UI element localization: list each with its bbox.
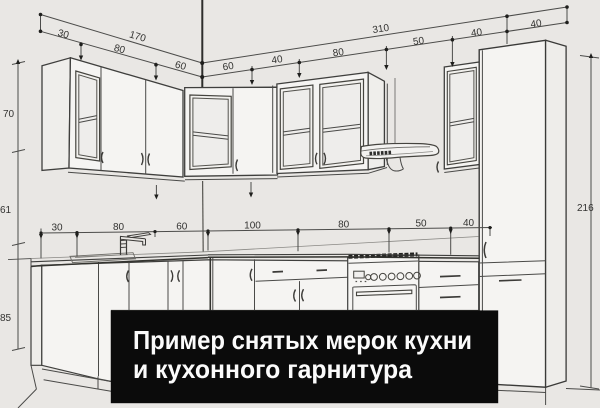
- svg-text:216: 216: [577, 203, 594, 214]
- svg-text:100: 100: [244, 221, 261, 232]
- svg-text:61: 61: [0, 205, 12, 216]
- svg-text:60: 60: [222, 61, 235, 74]
- svg-text:40: 40: [530, 18, 543, 31]
- svg-text:50: 50: [415, 219, 427, 230]
- svg-text:и кухонного гарнитура: и кухонного гарнитура: [133, 354, 413, 384]
- svg-text:30: 30: [51, 223, 63, 234]
- svg-text:60: 60: [176, 222, 188, 233]
- svg-text:70: 70: [3, 109, 15, 120]
- svg-text:40: 40: [470, 27, 483, 40]
- svg-text:85: 85: [0, 313, 12, 324]
- svg-text:80: 80: [332, 47, 345, 60]
- svg-text:80: 80: [113, 222, 125, 233]
- svg-text:80: 80: [338, 220, 350, 231]
- svg-text:50: 50: [412, 35, 425, 48]
- svg-text:40: 40: [271, 54, 284, 67]
- svg-text:Пример снятых мерок кухни: Пример снятых мерок кухни: [133, 325, 472, 355]
- svg-text:40: 40: [463, 218, 475, 229]
